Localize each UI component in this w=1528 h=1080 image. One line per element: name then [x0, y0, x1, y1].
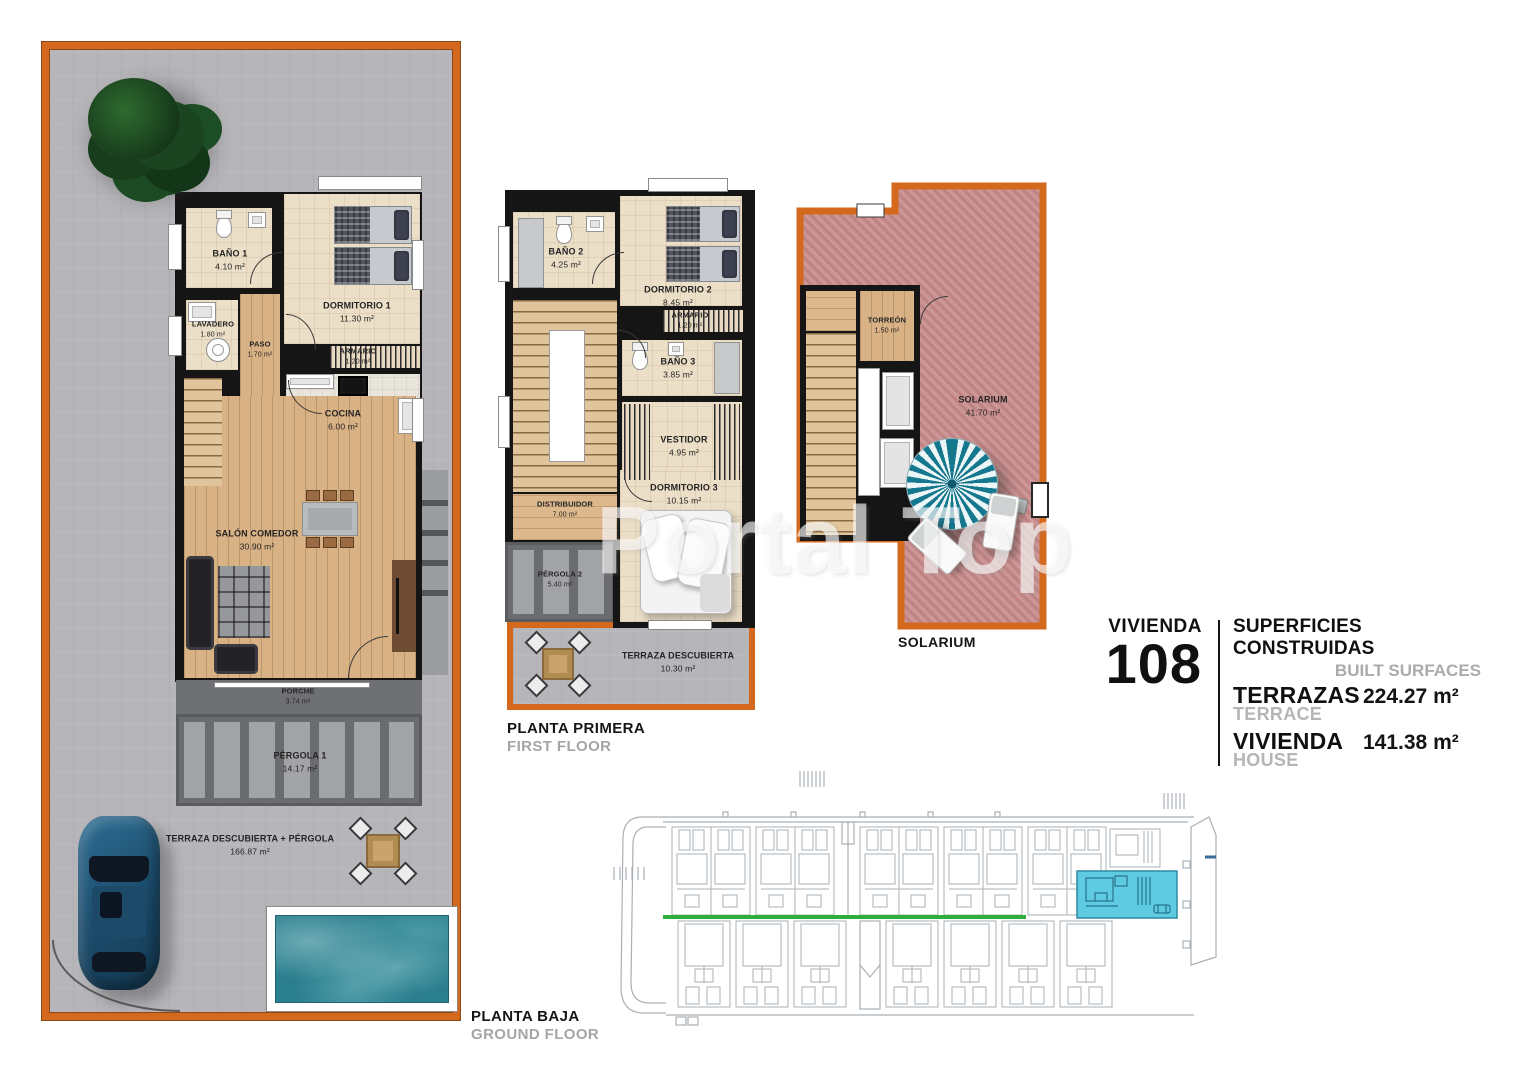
room-label-torreon: TORREÓN1.50 m²: [868, 315, 906, 336]
stair-void: [858, 368, 880, 496]
room-label-armario2: ARMARIO1.20 m²: [672, 310, 709, 331]
toilet-icon: [556, 222, 572, 244]
window: [498, 226, 510, 282]
room-label-pergola1: PÉRGOLA 114.17 m²: [273, 749, 326, 774]
first-floor-caption: PLANTA PRIMERA FIRST FLOOR: [507, 720, 645, 756]
road-hatch: [614, 867, 644, 880]
stair-landing: [806, 291, 856, 331]
unit-number: 108: [1102, 638, 1202, 690]
tree-icon: [88, 78, 180, 160]
window: [648, 620, 712, 630]
ground-stairs: [184, 378, 222, 486]
parking-comb: [800, 771, 824, 787]
shower: [714, 342, 740, 394]
surfaces-title: SUPERFICIES CONSTRUIDAS BUILT SURFACES: [1233, 616, 1481, 681]
sink-icon: [668, 342, 684, 356]
room-label-porche: PORCHE3.74 m²: [282, 686, 315, 707]
cooktop-icon: [338, 376, 368, 396]
room-label-vestidor: VESTIDOR4.95 m²: [660, 433, 707, 458]
room-label-pergola2: PÉRGOLA 25.40 m²: [538, 569, 582, 590]
washer-icon: [206, 338, 230, 362]
car-roof: [92, 886, 146, 938]
unit-title: VIVIENDA 108: [1102, 616, 1202, 690]
umbrella-icon: [906, 438, 998, 530]
patio-table-set: [350, 818, 416, 884]
room-label-dormitorio2: DORMITORIO 28.45 m²: [644, 283, 712, 308]
patio-table: [542, 648, 574, 680]
room-label-armario1: ARMARIO1.20 m²: [340, 346, 377, 367]
chair: [323, 537, 337, 548]
bed: [334, 206, 412, 244]
chair: [306, 490, 320, 501]
room-label-bano3: BAÑO 33.85 m²: [661, 355, 696, 380]
room-label-dormitorio1: DORMITORIO 111.30 m²: [323, 299, 391, 324]
room-label-terraza2: TERRAZA DESCUBIERTA10.30 m²: [622, 649, 734, 674]
sink-icon: [248, 212, 266, 228]
window-sill: [318, 176, 422, 190]
solarium-sink: [882, 372, 914, 430]
chair: [323, 490, 337, 501]
toilet-icon: [216, 216, 232, 238]
room-label-distribuidor: DISTRIBUIDOR7.00 m²: [537, 499, 593, 520]
bed: [334, 247, 412, 285]
car-rear-glass: [92, 952, 146, 972]
wardrobe-hatch: [624, 404, 650, 480]
shower: [518, 218, 544, 288]
room-label-terraza: TERRAZA DESCUBIERTA + PÉRGOLA166.87 m²: [166, 832, 334, 857]
rug: [218, 566, 270, 638]
terrace-surface-sub: TERRACE: [1233, 704, 1322, 725]
pool: [266, 906, 458, 1012]
room-label-salon: SALÓN COMEDOR30.90 m²: [216, 527, 299, 552]
stair-void: [549, 330, 585, 462]
room-label-lavadero: LAVADERO1.80 m²: [192, 319, 234, 340]
window: [498, 396, 510, 448]
step: [422, 590, 448, 596]
car-icon: [78, 816, 160, 990]
step: [422, 500, 448, 506]
sink-icon: [586, 216, 604, 232]
bed: [666, 206, 740, 242]
pool-water: [275, 915, 449, 1003]
chair: [306, 537, 320, 548]
site-unit: [1110, 829, 1160, 867]
window: [168, 224, 182, 270]
floorplan-sheet: BAÑO 14.10 m² LAVADERO1.80 m² PASO1.70 m…: [0, 0, 1528, 1080]
step: [422, 560, 448, 566]
sofa: [186, 556, 214, 650]
window: [168, 316, 182, 356]
room-label-bano2: BAÑO 24.25 m²: [549, 245, 584, 270]
window: [857, 204, 884, 217]
site-plan: [608, 765, 1220, 1037]
solarium-stairs: [806, 333, 856, 535]
house-surface-sub: HOUSE: [1233, 750, 1299, 771]
room-label-cocina: COCINA6.00 m²: [325, 407, 361, 432]
room-label-paso: PASO1.70 m²: [248, 339, 273, 360]
window: [412, 398, 424, 442]
blanket: [700, 574, 730, 612]
window: [1032, 483, 1048, 517]
tv-unit: [392, 560, 416, 652]
room-label-bano1: BAÑO 14.10 m²: [213, 247, 248, 272]
bed: [666, 246, 740, 282]
ground-floor-caption: PLANTA BAJA GROUND FLOOR: [471, 1008, 599, 1044]
step: [422, 530, 448, 536]
room-label-dormitorio3: DORMITORIO 310.15 m²: [650, 481, 718, 506]
patio-table: [366, 834, 400, 868]
window: [412, 240, 424, 290]
panel-divider: [1218, 620, 1220, 766]
site-highlighted-unit: [1077, 871, 1177, 918]
dining-table: [302, 502, 358, 536]
armchair: [214, 644, 258, 674]
chair: [340, 490, 354, 501]
window-sill: [648, 178, 728, 192]
solarium-caption: SOLARIUM: [898, 634, 976, 651]
wardrobe-hatch: [714, 404, 740, 480]
car-windshield: [89, 856, 149, 882]
parking-comb: [1164, 793, 1184, 809]
patio-table-set: [528, 634, 588, 694]
room-label-solarium: SOLARIUM41.70 m²: [958, 393, 1007, 418]
chair: [340, 537, 354, 548]
